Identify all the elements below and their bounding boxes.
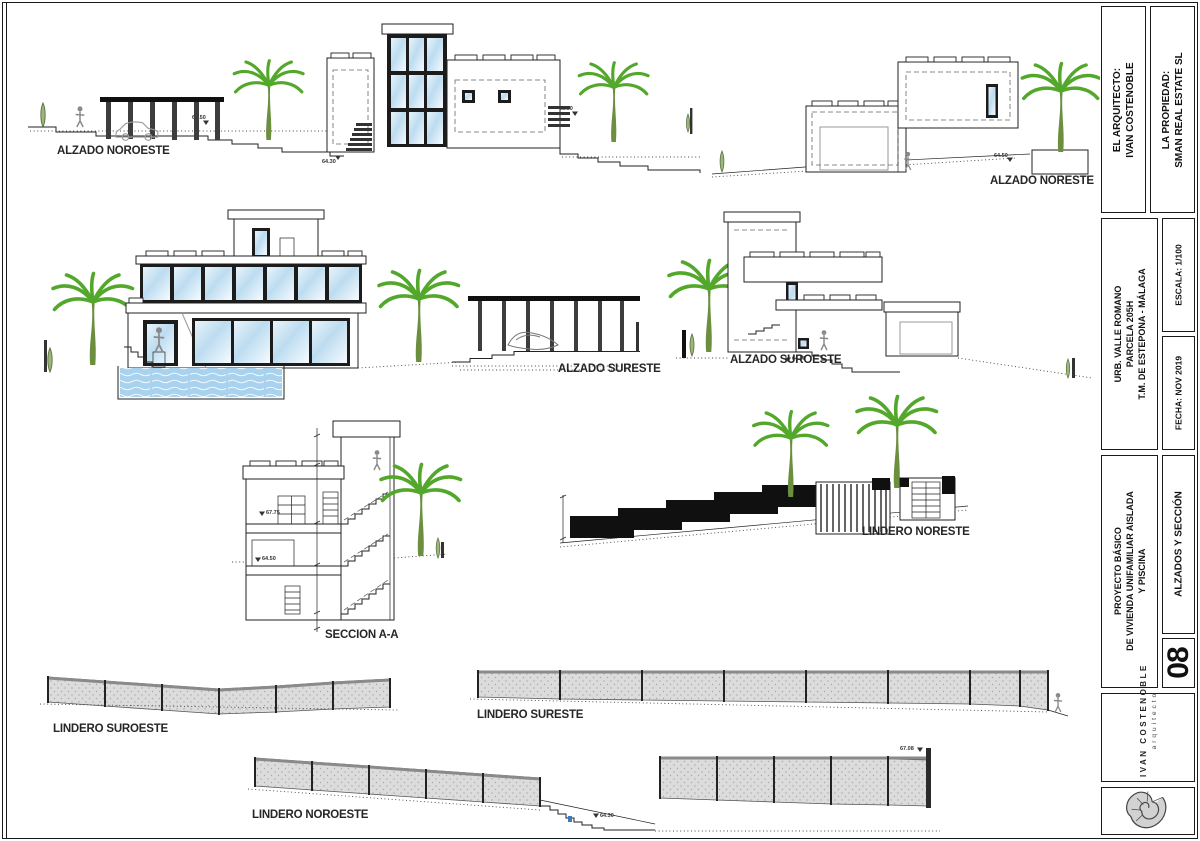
fence-panels xyxy=(478,671,1048,710)
lower-volume xyxy=(806,106,906,172)
svg-text:64.30: 64.30 xyxy=(600,813,614,819)
architect-name: IVAN COSTENOBLE xyxy=(1124,10,1137,210)
cypress-symbol xyxy=(41,103,45,127)
elevation-marker: 64.30 xyxy=(322,156,341,166)
pergola-beam xyxy=(100,97,224,102)
svg-text:67.08: 67.08 xyxy=(900,746,914,752)
floor-slab-1 xyxy=(246,524,341,533)
lower-slab xyxy=(776,300,882,310)
palm-tree-symbol xyxy=(53,274,133,366)
palm-tree-symbol xyxy=(579,63,648,142)
palm-tree-symbol xyxy=(857,397,937,489)
palm-tree-symbol xyxy=(379,271,459,363)
roof-slab xyxy=(243,466,344,479)
property-box: LA PROPIEDAD: SMAN REAL ESTATE SL xyxy=(1150,6,1195,213)
roof-blocks xyxy=(250,461,338,466)
alzado-noreste-drawing: 64.50 xyxy=(712,57,1099,177)
location-line3: T.M. DE ESTEPONA - MÁLAGA xyxy=(1136,221,1148,447)
roof-blocks xyxy=(906,57,1010,62)
label-alzado-noroeste: ALZADO NOROESTE xyxy=(57,146,170,158)
fence-panels xyxy=(255,758,540,806)
roof-blocks xyxy=(804,295,876,300)
architect-box: EL ARQUITECTO: IVAN COSTENOBLE xyxy=(1101,6,1146,213)
date-box: FECHA: NOV 2019 xyxy=(1162,336,1195,450)
lindero-noreste-drawing xyxy=(560,397,968,548)
svg-text:68.50: 68.50 xyxy=(559,106,573,112)
penthouse-roof xyxy=(228,210,324,219)
tower-roof-slab xyxy=(382,24,453,34)
project-line2: DE VIVIENDA UNIFAMILIAR AISLADA xyxy=(1124,458,1136,684)
property-label: LA PROPIEDAD: xyxy=(1160,10,1173,210)
alzado-sureste-drawing xyxy=(44,210,640,399)
svg-text:64.50: 64.50 xyxy=(994,153,1008,159)
person-symbol xyxy=(1054,693,1062,712)
house-left-volume xyxy=(327,58,374,152)
entry-gate xyxy=(900,476,955,520)
label-alzado-sureste: ALZADO SURESTE xyxy=(558,364,661,376)
palm-tree-symbol xyxy=(234,61,303,140)
planter xyxy=(1032,150,1088,174)
house-right-volume xyxy=(447,60,560,148)
sheet-title-box: ALZADOS Y SECCIÓN xyxy=(1162,455,1195,633)
label-alzado-suroeste: ALZADO SUROESTE xyxy=(730,355,841,367)
upper-slab xyxy=(744,257,882,282)
firm-name: IVAN COSTENOBLE xyxy=(1139,664,1148,778)
roof-blocks xyxy=(750,252,880,257)
location-line1: URB. VALLE ROMANO xyxy=(1111,221,1123,447)
roof-blocks xyxy=(812,101,902,106)
architect-card-box: IVAN COSTENOBLE arquitecto xyxy=(1101,693,1195,783)
project-title-box: PROYECTO BÁSICO DE VIVIENDA UNIFAMILIAR … xyxy=(1101,455,1158,687)
date-value: FECHA: NOV 2019 xyxy=(1173,338,1184,448)
scale-box: ESCALA: 1/100 xyxy=(1162,218,1195,332)
label-alzado-noreste: ALZADO NORESTE xyxy=(990,176,1094,188)
label-seccion: SECCION A-A xyxy=(325,630,398,642)
nautilus-logo xyxy=(1104,789,1192,831)
sheet-title: ALZADOS Y SECCIÓN xyxy=(1172,458,1185,630)
elevation-marker: 67.08 xyxy=(900,746,923,752)
section-body xyxy=(246,479,341,620)
right-slab xyxy=(884,302,960,312)
tower xyxy=(728,222,796,352)
end-post xyxy=(926,748,931,808)
architect-label: EL ARQUITECTO: xyxy=(1111,10,1124,210)
property-name: SMAN REAL ESTATE SL xyxy=(1173,10,1186,210)
stair-tower-cap xyxy=(333,421,400,437)
label-lindero-noroeste: LINDERO NOROESTE xyxy=(252,810,368,822)
sheet-number-box: 08 xyxy=(1162,638,1195,688)
firm-role: arquitecto xyxy=(1151,664,1158,778)
seccion-aa-drawing: 67.75 64.50 xyxy=(232,421,461,632)
lindero-suroeste-drawing xyxy=(40,676,398,715)
location-box: URB. VALLE ROMANO PARCELA 205H T.M. DE E… xyxy=(1101,218,1158,450)
palm-tree-symbol xyxy=(1022,64,1099,152)
mid-slab xyxy=(126,303,366,313)
project-line3: Y PISCINA xyxy=(1136,458,1148,684)
label-lindero-noreste: LINDERO NORESTE xyxy=(862,527,970,539)
logo-box xyxy=(1101,787,1195,835)
right-volume xyxy=(886,312,958,356)
drawing-sheet: 68.50 xyxy=(0,0,1200,841)
elevation-marker: 64.30 xyxy=(593,813,614,819)
svg-text:64.30: 64.30 xyxy=(322,159,336,165)
elevation-marker: 64.50 xyxy=(994,153,1013,162)
pergola-beam xyxy=(468,296,640,301)
label-lindero-suroeste: LINDERO SUROESTE xyxy=(53,724,168,736)
tower-cap xyxy=(724,212,800,222)
stair-shaft xyxy=(341,437,394,620)
sheet-number: 08 xyxy=(1162,640,1196,686)
stepped-black-wall xyxy=(570,485,818,538)
penthouse xyxy=(234,219,318,258)
person-symbol xyxy=(820,330,828,350)
scale-value: ESCALA: 1/100 xyxy=(1173,220,1184,330)
svg-text:64.50: 64.50 xyxy=(262,556,276,562)
project-line1: PROYECTO BÁSICO xyxy=(1111,458,1123,684)
floor-slab-2 xyxy=(246,566,341,575)
person-symbol xyxy=(76,106,85,127)
pergola-posts xyxy=(478,301,624,351)
svg-text:67.75: 67.75 xyxy=(266,510,280,516)
tower-glazing xyxy=(391,38,443,144)
pool-water xyxy=(120,368,282,397)
label-lindero-sureste: LINDERO SURESTE xyxy=(477,710,583,722)
title-block: EL ARQUITECTO: IVAN COSTENOBLE LA PROPIE… xyxy=(1101,6,1195,835)
location-line2: PARCELA 205H xyxy=(1124,221,1136,447)
upper-roof-slab xyxy=(136,256,366,264)
